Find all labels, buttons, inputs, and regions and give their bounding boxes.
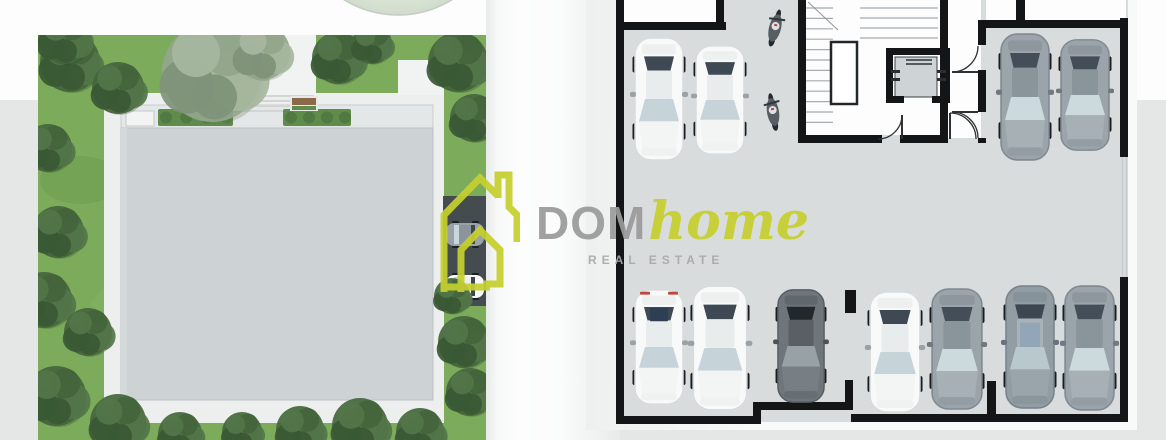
parked-car [773,290,829,402]
parked-car [688,286,753,410]
parked-car [1001,286,1059,408]
parked-car [927,289,987,409]
parked-car [996,34,1054,160]
domhome-logo: DOMhome REAL ESTATE [434,166,744,296]
parked-car [1056,40,1114,150]
parked-car [691,46,749,154]
parked-car [865,292,925,412]
parked-car [630,290,688,404]
parked-car [1060,286,1119,410]
parked-car [630,38,688,160]
domhome-house-icon [434,168,520,292]
logo-text-home: home [648,196,809,248]
logo-text-dom: DOM [536,200,646,246]
brochure-page: DOMhome REAL ESTATE [0,0,1166,440]
logo-subtitle: REAL ESTATE [588,254,724,266]
site-plan-render [15,12,502,440]
